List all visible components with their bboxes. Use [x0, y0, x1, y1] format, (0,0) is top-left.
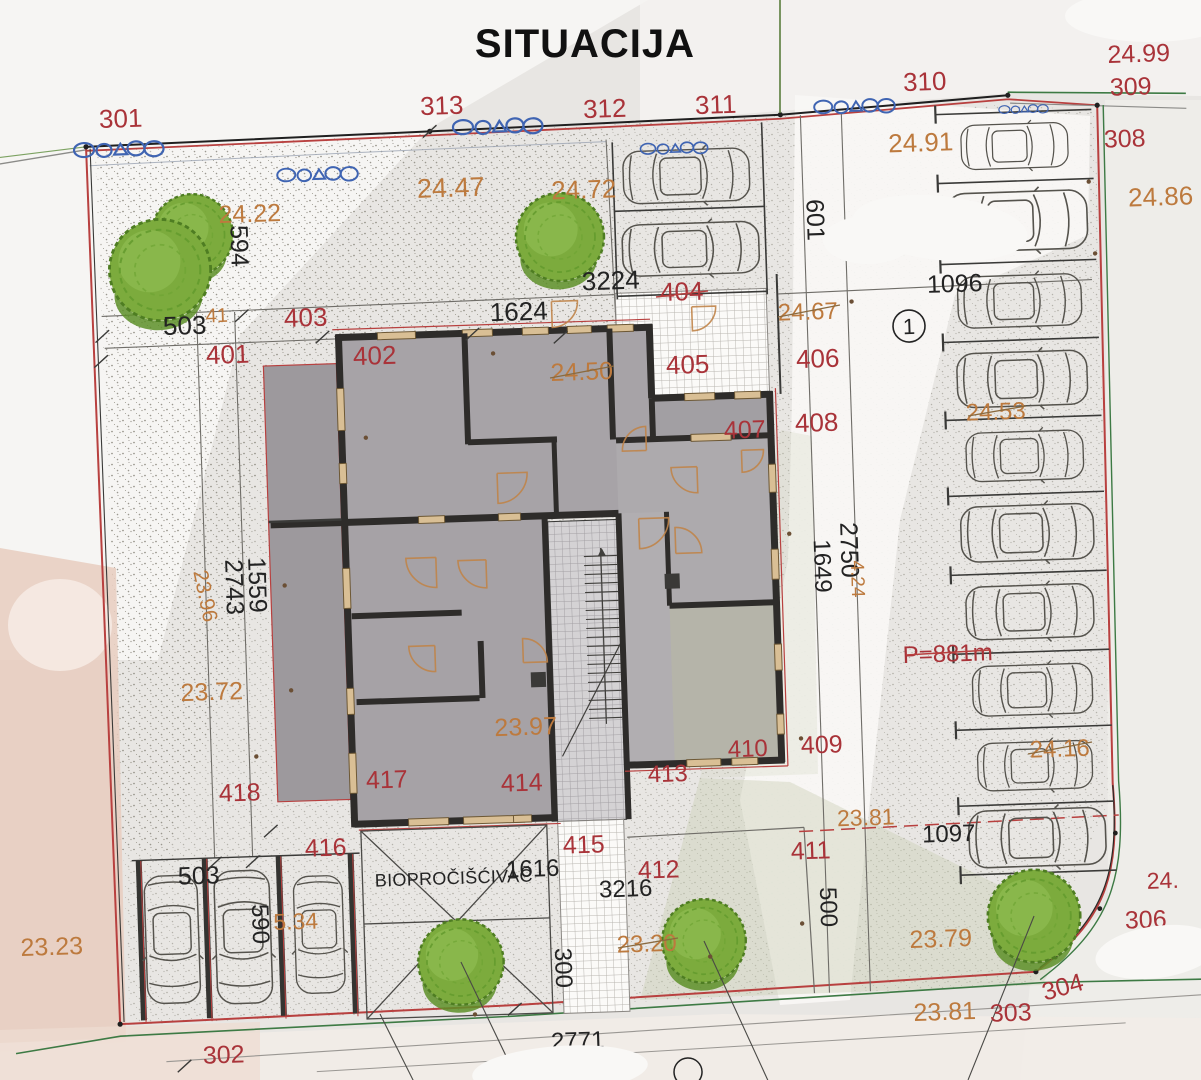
svg-text:23.79: 23.79	[909, 924, 972, 954]
svg-text:417: 417	[365, 765, 408, 794]
svg-text:24.72: 24.72	[551, 173, 617, 205]
svg-text:409: 409	[800, 730, 843, 759]
svg-text:503: 503	[163, 310, 207, 341]
svg-text:594: 594	[224, 225, 253, 268]
svg-text:302: 302	[202, 1040, 245, 1069]
svg-text:310: 310	[903, 66, 947, 97]
svg-text:24.53: 24.53	[965, 398, 1026, 427]
svg-text:SITUACIJA: SITUACIJA	[475, 22, 695, 66]
svg-text:405: 405	[665, 349, 709, 380]
svg-text:308: 308	[1103, 124, 1146, 153]
svg-text:416: 416	[304, 833, 347, 862]
svg-text:24.91: 24.91	[888, 126, 954, 158]
svg-text:301: 301	[99, 103, 143, 134]
svg-text:404: 404	[660, 276, 704, 307]
svg-text:1559: 1559	[242, 557, 272, 614]
svg-text:413: 413	[647, 760, 688, 788]
svg-text:23.81: 23.81	[837, 803, 895, 831]
svg-text:3224: 3224	[581, 264, 640, 296]
svg-text:3216: 3216	[599, 875, 653, 904]
svg-text:311: 311	[694, 89, 736, 120]
svg-text:24.47: 24.47	[416, 172, 485, 204]
svg-text:4.24: 4.24	[846, 560, 868, 598]
svg-text:313: 313	[420, 90, 464, 121]
svg-text:24.16: 24.16	[1029, 735, 1090, 764]
svg-text:414: 414	[500, 768, 543, 797]
svg-text:1096: 1096	[926, 269, 983, 299]
svg-text:418: 418	[218, 778, 261, 807]
svg-text:41: 41	[205, 305, 228, 328]
svg-text:5.34: 5.34	[273, 908, 319, 935]
svg-text:23.23: 23.23	[20, 932, 83, 962]
svg-text:309: 309	[1109, 72, 1152, 101]
svg-text:312: 312	[583, 93, 627, 124]
svg-text:401: 401	[205, 339, 249, 370]
svg-text:23.81: 23.81	[913, 997, 976, 1027]
svg-text:303: 303	[989, 998, 1032, 1027]
svg-text:503: 503	[177, 861, 220, 890]
svg-text:407: 407	[723, 415, 766, 444]
svg-text:408: 408	[794, 407, 838, 438]
svg-text:410: 410	[727, 735, 768, 763]
svg-text:24.86: 24.86	[1128, 180, 1194, 212]
svg-text:1624: 1624	[489, 295, 548, 327]
svg-text:23.20: 23.20	[616, 930, 677, 959]
svg-text:24.99: 24.99	[1107, 39, 1170, 69]
svg-text:590: 590	[246, 904, 274, 945]
svg-text:403: 403	[284, 302, 328, 333]
svg-text:500: 500	[814, 887, 842, 928]
svg-text:411: 411	[790, 836, 831, 865]
svg-text:402: 402	[353, 340, 397, 371]
svg-text:1: 1	[902, 314, 915, 339]
svg-text:1649: 1649	[808, 539, 837, 593]
svg-text:23.97: 23.97	[494, 712, 557, 742]
svg-text:24.67: 24.67	[777, 298, 838, 327]
svg-text:300: 300	[549, 947, 577, 988]
svg-text:415: 415	[562, 830, 605, 859]
svg-text:24.: 24.	[1146, 867, 1179, 894]
svg-text:406: 406	[796, 343, 840, 374]
svg-text:1097: 1097	[922, 820, 976, 849]
svg-text:23.72: 23.72	[180, 677, 243, 707]
